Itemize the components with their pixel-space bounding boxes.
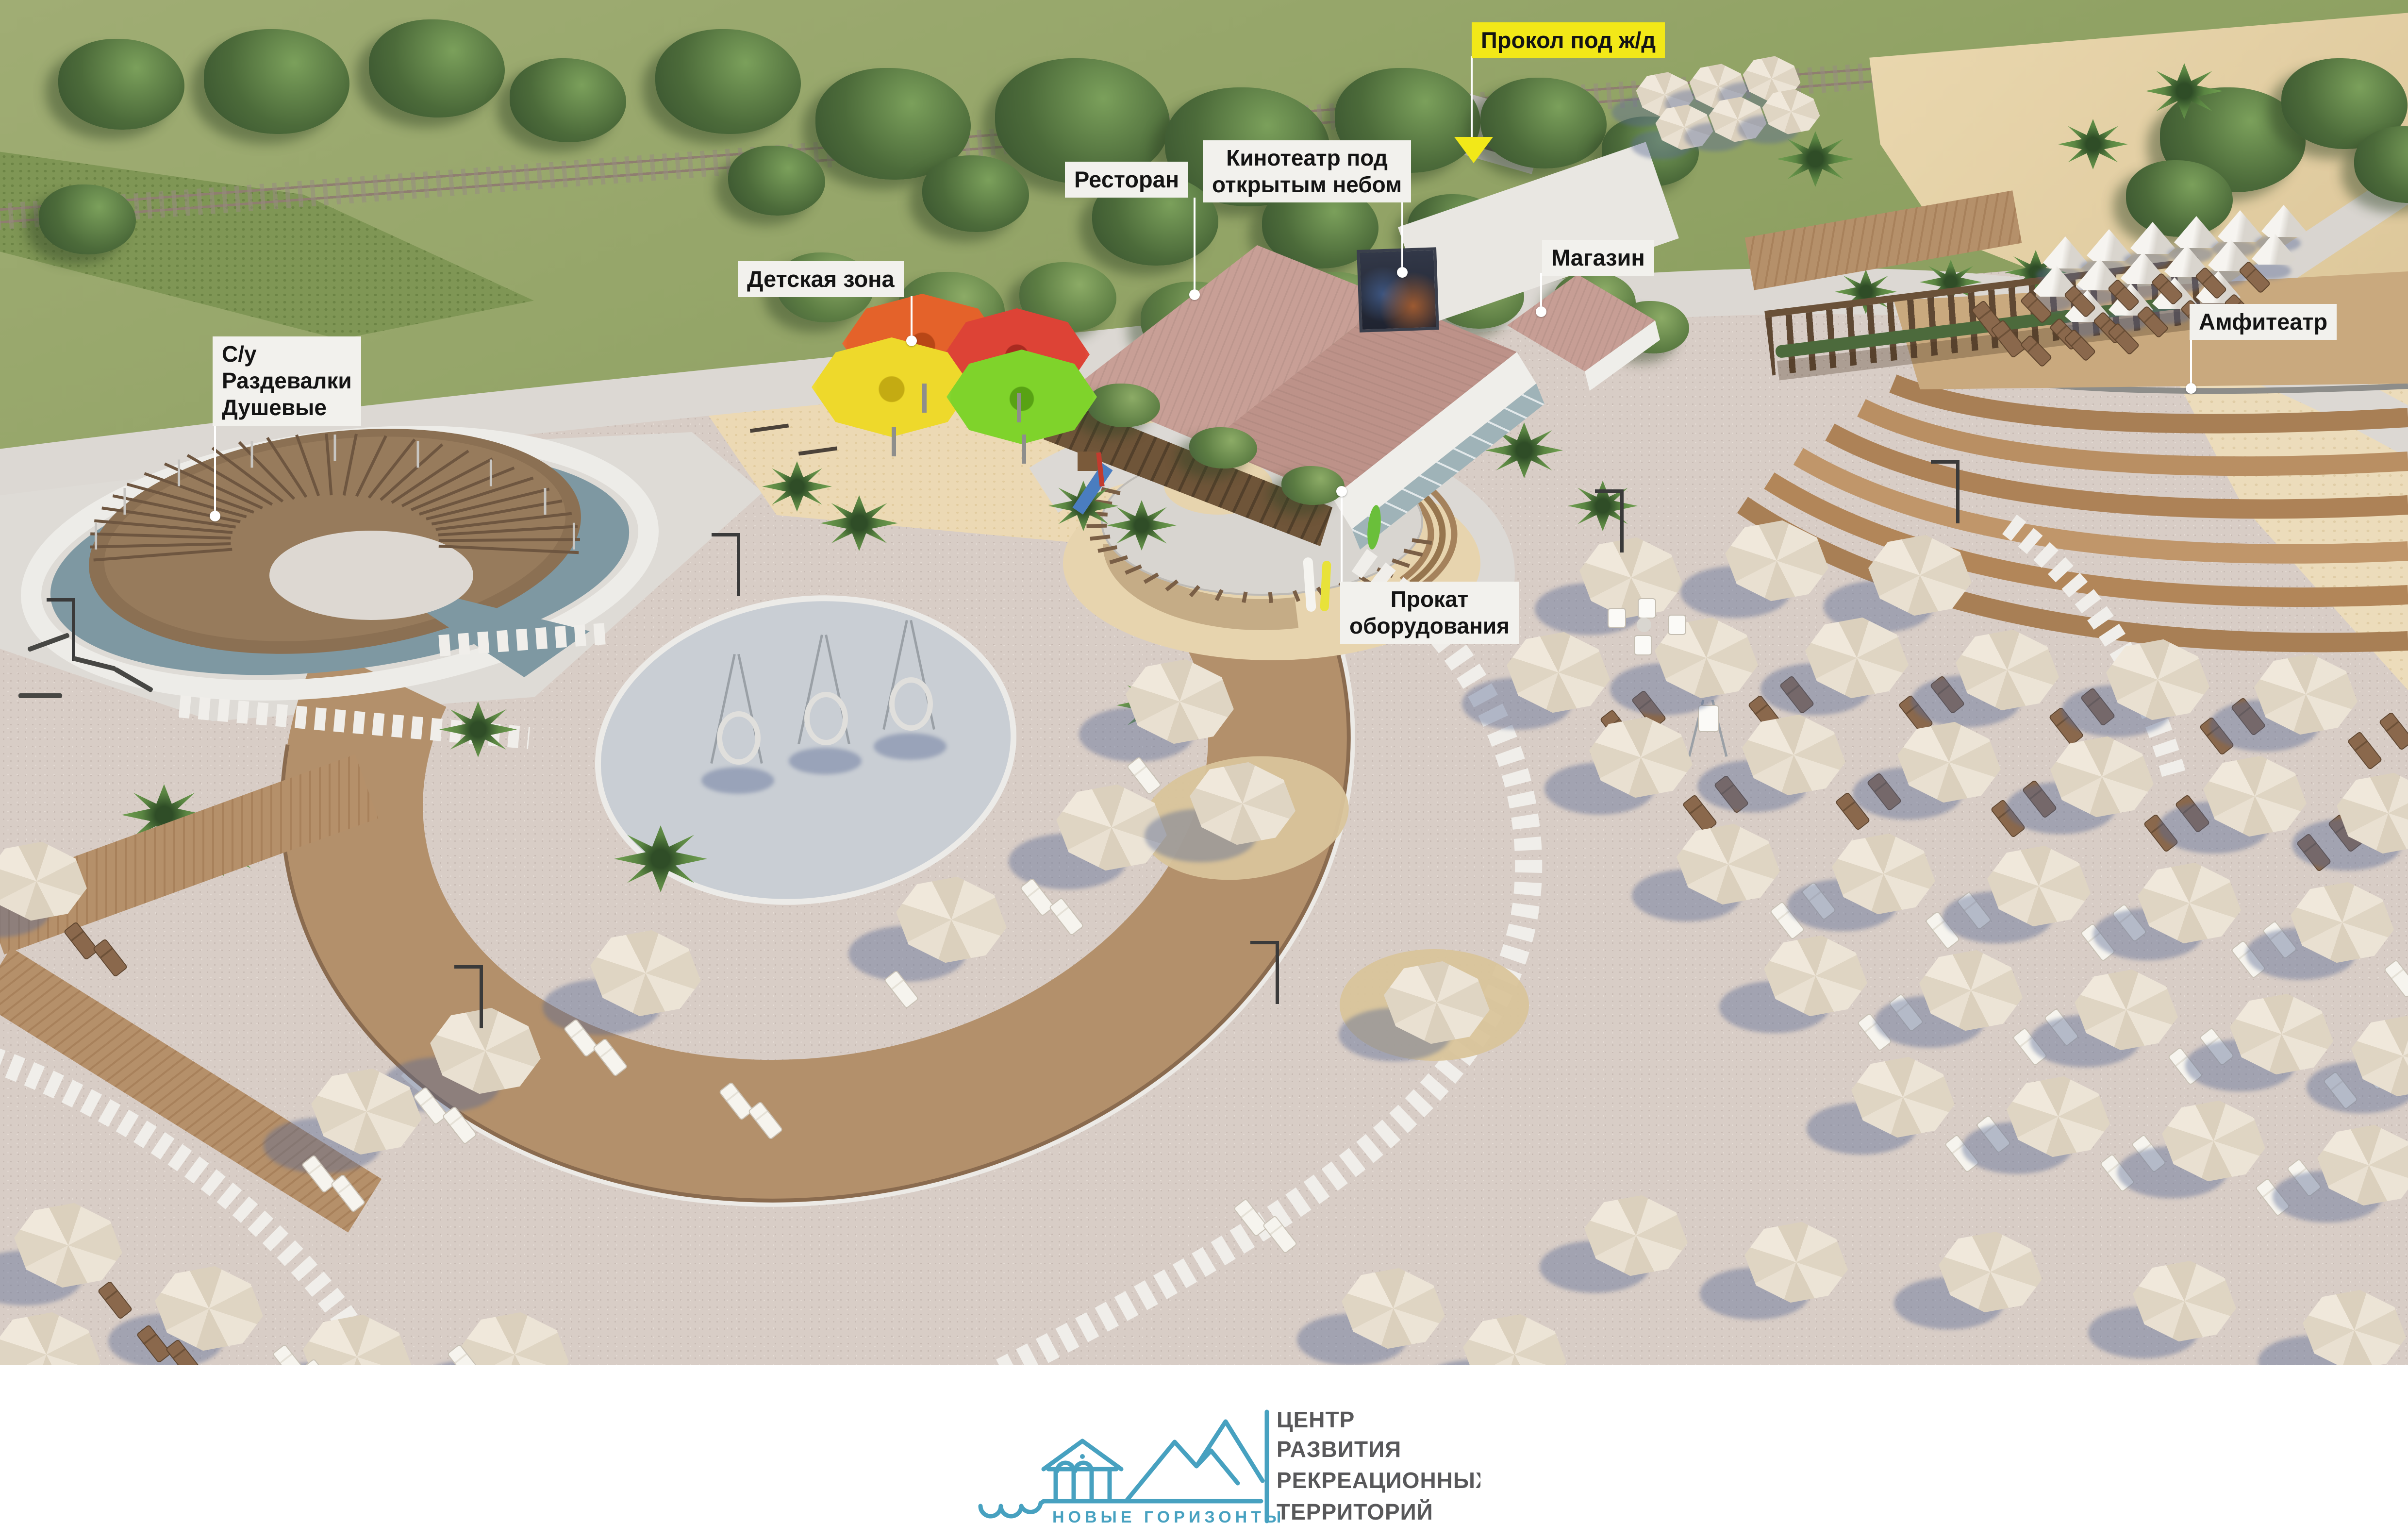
lamp-arm bbox=[1595, 489, 1622, 493]
lamp-arm bbox=[1931, 460, 1958, 464]
leader-line-kids bbox=[911, 296, 913, 341]
svg-text:РАЗВИТИЯ: РАЗВИТИЯ bbox=[1277, 1437, 1401, 1462]
lamp-arm bbox=[47, 598, 74, 602]
tree bbox=[204, 29, 349, 134]
kids-dot bbox=[906, 335, 917, 346]
pergola-vine bbox=[1281, 466, 1345, 505]
tree bbox=[39, 184, 136, 254]
label-kids-zone: Детская зона bbox=[738, 261, 904, 297]
flower-canopy-yellow bbox=[812, 337, 972, 437]
tree bbox=[922, 155, 1029, 232]
palm-tree bbox=[614, 825, 707, 892]
swing-shadow bbox=[701, 767, 774, 794]
canopy-pole bbox=[1022, 435, 1026, 464]
leader-line-wc bbox=[214, 415, 216, 516]
label-rail-undercrossing: Прокол под ж/д bbox=[1472, 22, 1665, 58]
palm-tree bbox=[762, 461, 832, 512]
beach-sand-base: Прокол под ж/д Ресторан Кинотеатр под от… bbox=[0, 0, 2408, 1365]
palm-tree bbox=[2145, 63, 2223, 119]
tree bbox=[369, 19, 505, 117]
svg-text:ЦЕНТР: ЦЕНТР bbox=[1277, 1407, 1355, 1432]
tree bbox=[510, 58, 626, 142]
ring-swing bbox=[804, 692, 848, 745]
lamp-post bbox=[1276, 941, 1279, 1004]
shop-building bbox=[1500, 262, 1675, 418]
deck-chair bbox=[1638, 598, 1656, 619]
deck-chair bbox=[1634, 635, 1652, 655]
leader-line-prokol bbox=[1471, 56, 1473, 137]
lamp-post bbox=[480, 965, 483, 1028]
palm-tree bbox=[2058, 119, 2128, 169]
lamp-post bbox=[737, 533, 740, 596]
ring-swing bbox=[889, 677, 933, 731]
swing-shadow bbox=[789, 748, 862, 774]
canopy-pole bbox=[892, 427, 896, 456]
cinema-screen bbox=[1357, 247, 1439, 333]
fitness-equipment bbox=[18, 693, 62, 698]
tree bbox=[58, 39, 184, 130]
leader-line-amphitheater bbox=[2190, 338, 2192, 388]
deck-chair bbox=[1668, 615, 1686, 635]
lamp-arm bbox=[454, 965, 482, 969]
label-amphitheater: Амфитеатр bbox=[2190, 304, 2337, 340]
lifeguard-seat bbox=[1698, 705, 1719, 732]
swing-shadow bbox=[874, 733, 947, 760]
logo-pavilion-icon bbox=[1044, 1441, 1121, 1501]
canopy-pole bbox=[922, 384, 927, 413]
tree bbox=[728, 146, 825, 216]
lamp-post bbox=[1956, 460, 1960, 523]
svg-text:РЕКРЕАЦИОННЫХ: РЕКРЕАЦИОННЫХ bbox=[1277, 1468, 1480, 1493]
lamp-post bbox=[1620, 489, 1624, 552]
pergola-vine bbox=[1087, 384, 1160, 427]
amphitheater-dot bbox=[2186, 383, 2196, 394]
label-wc-changing-showers: С/у Раздевалки Душевые bbox=[213, 336, 361, 426]
restaurant-dot bbox=[1189, 289, 1200, 300]
logo-brand-text: НОВЫЕ ГОРИЗОНТЫ bbox=[1052, 1508, 1285, 1526]
ring-swing bbox=[717, 711, 761, 765]
flower-canopy-green bbox=[947, 350, 1097, 444]
leader-line-rental bbox=[1341, 491, 1343, 584]
tree bbox=[2126, 160, 2233, 237]
footer-band: НОВЫЕ ГОРИЗОНТЫ ЦЕНТР РАЗВИТИЯ РЕКРЕАЦИО… bbox=[0, 1365, 2408, 1540]
lamp-post bbox=[72, 598, 75, 661]
wc-dot bbox=[210, 511, 220, 521]
logo-mountains-icon bbox=[1126, 1422, 1262, 1501]
leader-line-cinema bbox=[1401, 199, 1403, 272]
label-equipment-rental: Прокат оборудования bbox=[1340, 582, 1519, 644]
pavilion-courtyard bbox=[269, 531, 473, 620]
logo-org-text: ЦЕНТР РАЗВИТИЯ РЕКРЕАЦИОННЫХ ТЕРРИТОРИЙ bbox=[1277, 1407, 1480, 1524]
cinema-dot bbox=[1397, 267, 1408, 278]
pergola-vine bbox=[1189, 427, 1257, 469]
deck-table bbox=[1637, 618, 1651, 632]
canopy-pole bbox=[1017, 393, 1021, 422]
lamp-arm bbox=[1250, 941, 1278, 944]
logo: НОВЫЕ ГОРИЗОНТЫ ЦЕНТР РАЗВИТИЯ РЕКРЕАЦИО… bbox=[947, 1379, 1480, 1540]
leader-line-shop bbox=[1540, 273, 1542, 312]
palm-tree bbox=[820, 495, 898, 551]
label-restaurant: Ресторан bbox=[1065, 162, 1188, 198]
prokol-arrow bbox=[1454, 137, 1493, 163]
leader-line-restaurant bbox=[1194, 198, 1196, 295]
deck-chair bbox=[1608, 608, 1626, 628]
palm-tree bbox=[439, 702, 517, 757]
svg-text:ТЕРРИТОРИЙ: ТЕРРИТОРИЙ bbox=[1277, 1499, 1433, 1524]
label-shop: Магазин bbox=[1542, 240, 1654, 276]
tree bbox=[655, 29, 801, 134]
tree bbox=[1480, 78, 1607, 168]
shop-dot bbox=[1536, 306, 1546, 317]
masterplan-render: Прокол под ж/д Ресторан Кинотеатр под от… bbox=[0, 0, 2408, 1540]
lamp-arm bbox=[712, 533, 739, 536]
rental-dot bbox=[1336, 486, 1347, 497]
label-open-air-cinema: Кинотеатр под открытым небом bbox=[1203, 140, 1411, 202]
